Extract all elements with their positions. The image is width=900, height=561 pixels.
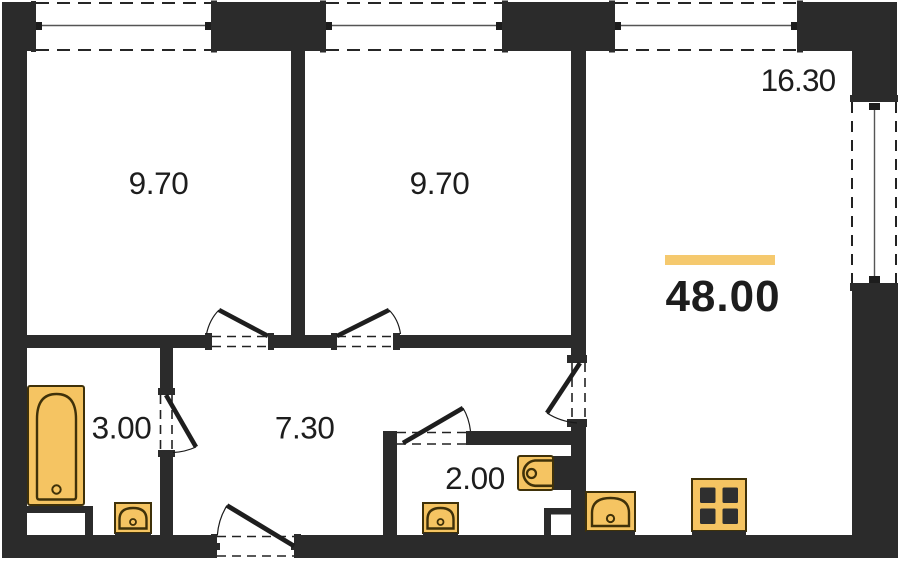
svg-text:2.00: 2.00 xyxy=(445,460,505,496)
svg-text:9.70: 9.70 xyxy=(129,165,189,201)
svg-text:7.30: 7.30 xyxy=(275,410,335,446)
svg-text:16.30: 16.30 xyxy=(761,62,836,98)
svg-text:3.00: 3.00 xyxy=(92,410,152,446)
svg-text:48.00: 48.00 xyxy=(665,272,780,321)
svg-text:9.70: 9.70 xyxy=(410,165,470,201)
